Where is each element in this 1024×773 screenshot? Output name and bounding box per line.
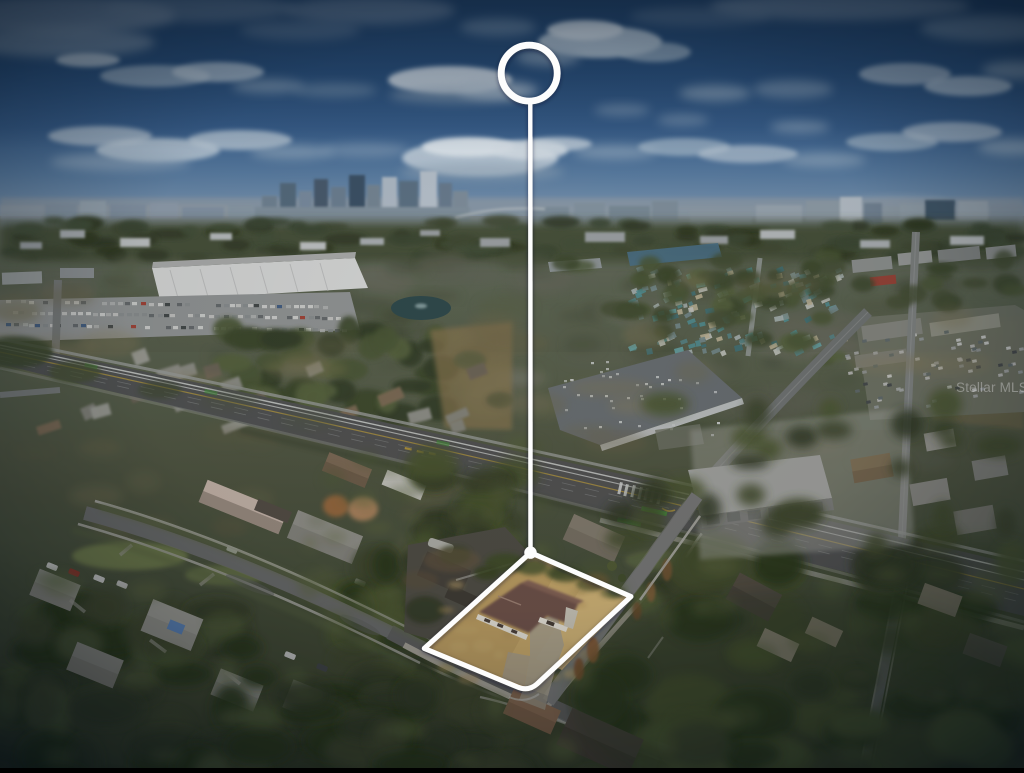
- svg-text:Stellar MLS: Stellar MLS: [956, 380, 1024, 395]
